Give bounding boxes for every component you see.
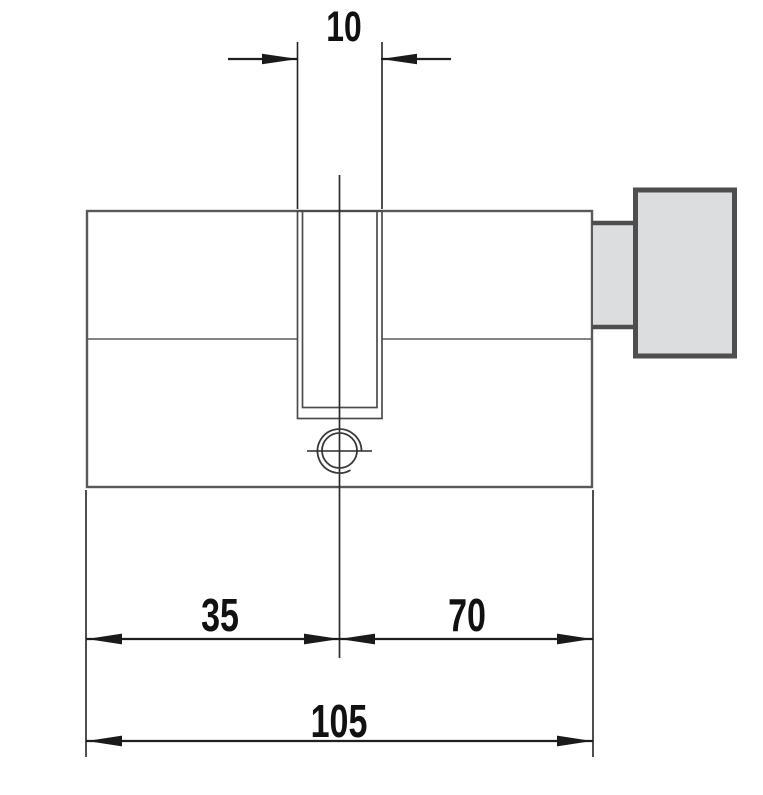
arrowhead-right-section-start <box>340 634 376 645</box>
thumbturn-knob <box>636 190 735 356</box>
cylinder-dimension-drawing: 10 35 70 105 <box>0 0 763 795</box>
arrowhead-overall-right <box>557 736 592 747</box>
thumbturn-neck <box>593 225 635 325</box>
slot-width-label: 10 <box>326 3 361 51</box>
right-section-label: 70 <box>448 589 486 641</box>
left-section-label: 35 <box>201 589 239 641</box>
arrowhead-left-section-start <box>87 634 122 645</box>
technical-drawing-canvas: 10 35 70 105 <box>0 0 763 795</box>
arrowhead-right-section-end <box>557 634 592 645</box>
arrowhead-slot-right <box>381 54 417 64</box>
arrowhead-left-section-end <box>304 634 340 645</box>
thumbturn-group <box>592 190 735 356</box>
arrowhead-slot-left <box>262 54 298 64</box>
arrowhead-overall-left <box>87 736 122 747</box>
overall-length-label: 105 <box>311 695 368 747</box>
dimension-overall-length: 105 <box>86 695 593 747</box>
